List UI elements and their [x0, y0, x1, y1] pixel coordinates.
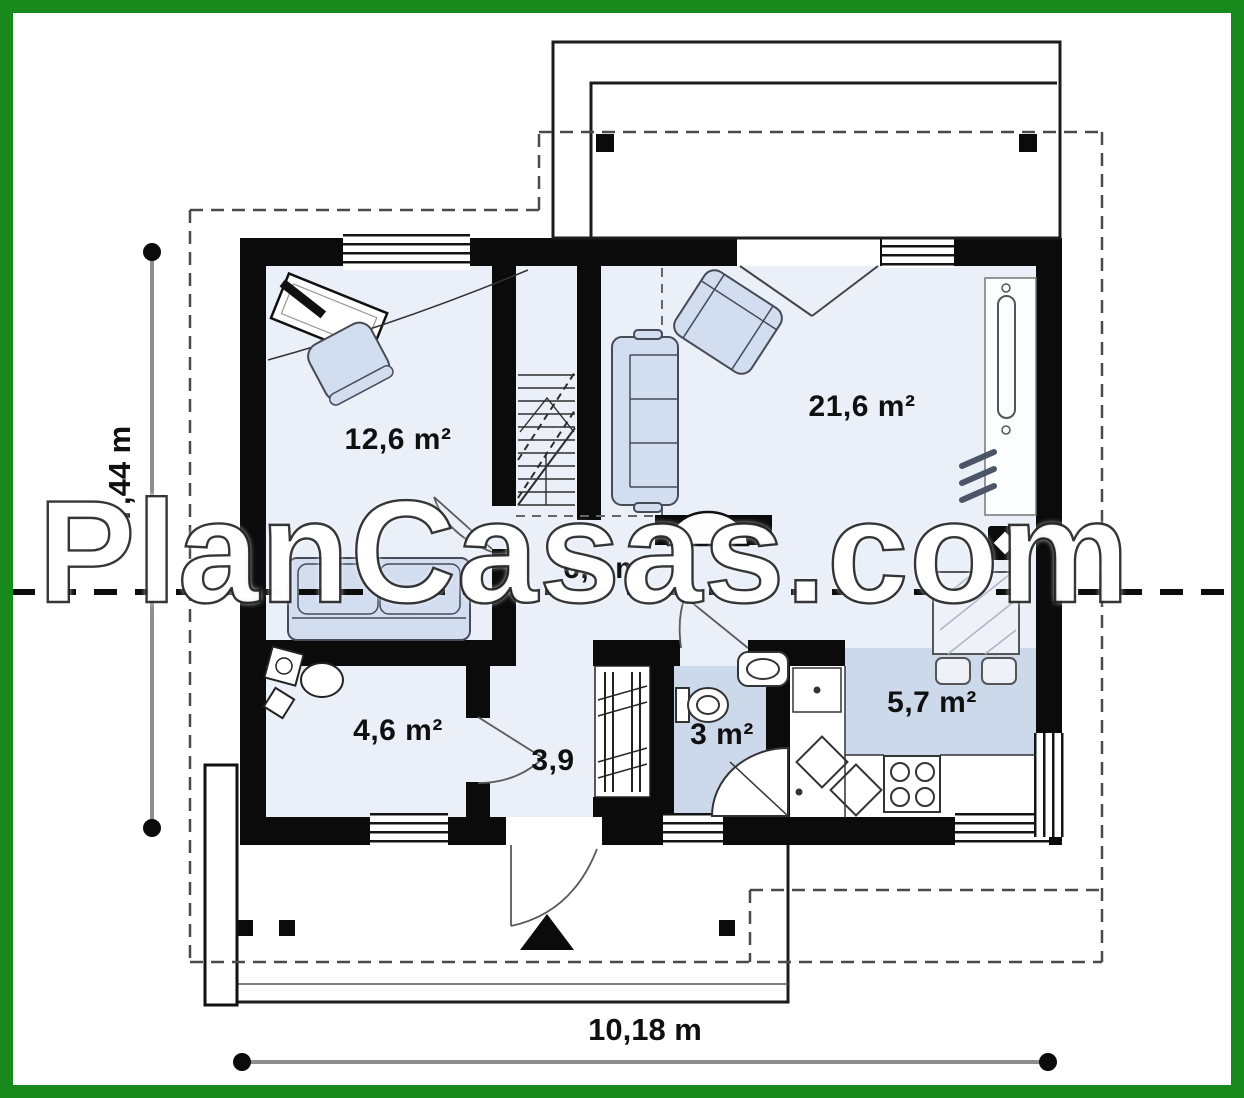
room-label-utility: 4,6 m² [298, 714, 498, 748]
room-label-corridor: 3,9 [503, 744, 603, 778]
room-label-living: 21,6 m² [762, 390, 962, 424]
room-label-bedroom: 12,6 m² [298, 423, 498, 457]
post-icon [279, 920, 295, 936]
post-icon [596, 134, 614, 152]
dimension-label-width: 10,18 m [545, 1012, 745, 1048]
entrance-door [511, 845, 597, 926]
entrance-arrow-icon [520, 914, 574, 950]
kitchen-sink-icon [796, 737, 882, 816]
terrace-outline [553, 42, 1060, 238]
post-icon [1019, 134, 1037, 152]
room-label-bathroom: 3 m² [662, 718, 782, 752]
chimney [205, 765, 237, 1005]
wardrobe [595, 666, 650, 797]
dimension-line-width [233, 1053, 1057, 1071]
post-icon [719, 920, 735, 936]
floor-plan: 12,6 m² 21,6 m² 6,9 m² 4,6 m² 3,9 3 m² 5… [0, 0, 1244, 1098]
cooktop-icon [884, 756, 940, 812]
chair [982, 658, 1016, 684]
armchair [670, 266, 787, 379]
utility-toilet-icon [264, 646, 343, 718]
room-label-kitchen: 5,7 m² [832, 686, 1032, 720]
toilet-icon [676, 688, 728, 722]
watermark-text: PlanCasas.com [38, 468, 1130, 636]
post-icon [237, 920, 253, 936]
shower-icon [712, 748, 788, 816]
bathroom-sink-icon [738, 652, 788, 686]
chair [936, 658, 970, 684]
